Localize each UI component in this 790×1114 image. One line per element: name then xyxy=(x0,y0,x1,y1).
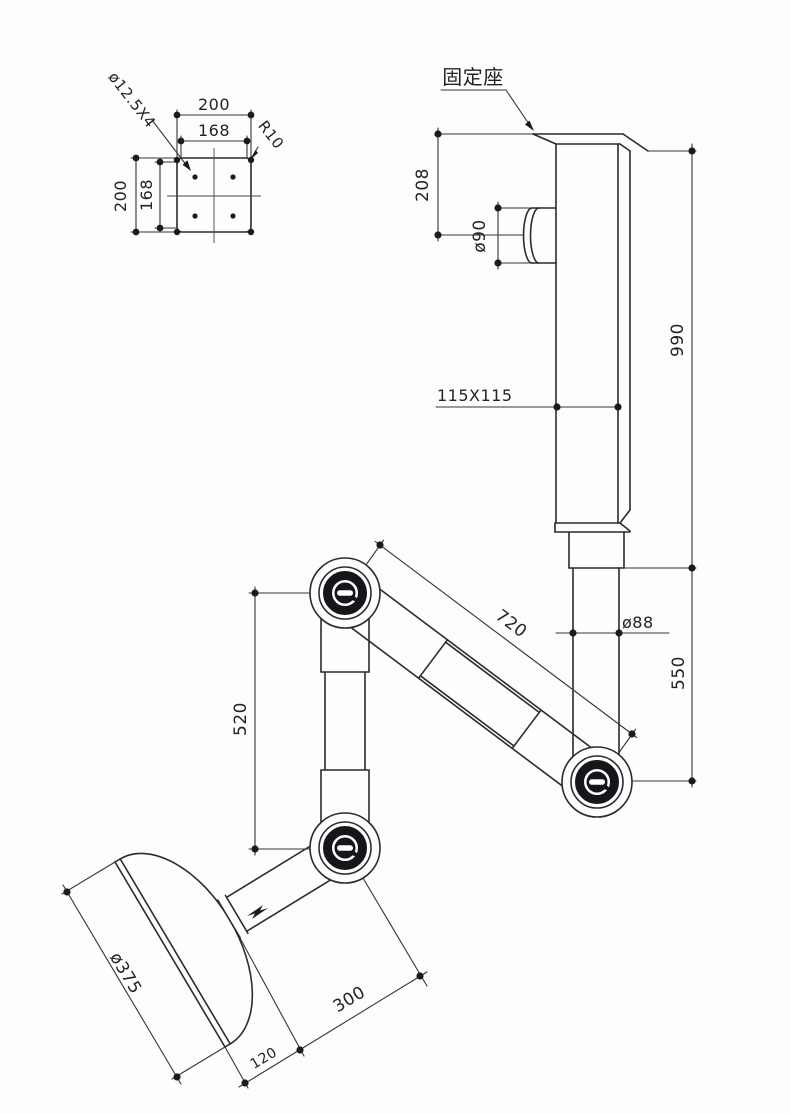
extraction-arm-drawing: 200 168 200 168 ø12.5X4 R10 固定座 208 ø90 … xyxy=(0,0,790,1114)
fixed-seat-label: 固定座 xyxy=(442,65,504,89)
technical-drawing-page: { "drawing": { "detail_view": { "plate_w… xyxy=(0,0,790,1114)
joint-lower-right xyxy=(562,747,632,817)
dim-column-section: 115X115 xyxy=(437,386,513,405)
dim-plate-to-pipe: 208 xyxy=(413,168,433,202)
joint-upper xyxy=(310,558,380,628)
dim-vertical-arm: 520 xyxy=(231,702,251,736)
dim-plate-width: 200 xyxy=(198,95,230,114)
dim-tube-height: 550 xyxy=(669,656,689,690)
dim-bolt-span-h: 168 xyxy=(198,121,230,140)
paper-background xyxy=(0,0,790,1114)
joint-hood xyxy=(310,813,380,883)
dim-pipe-dia: ø90 xyxy=(470,219,490,253)
dim-plate-height: 200 xyxy=(111,180,130,212)
dim-column-height: 990 xyxy=(668,323,688,357)
dim-tube-dia: ø88 xyxy=(622,613,654,632)
dim-bolt-span-v: 168 xyxy=(137,179,156,211)
